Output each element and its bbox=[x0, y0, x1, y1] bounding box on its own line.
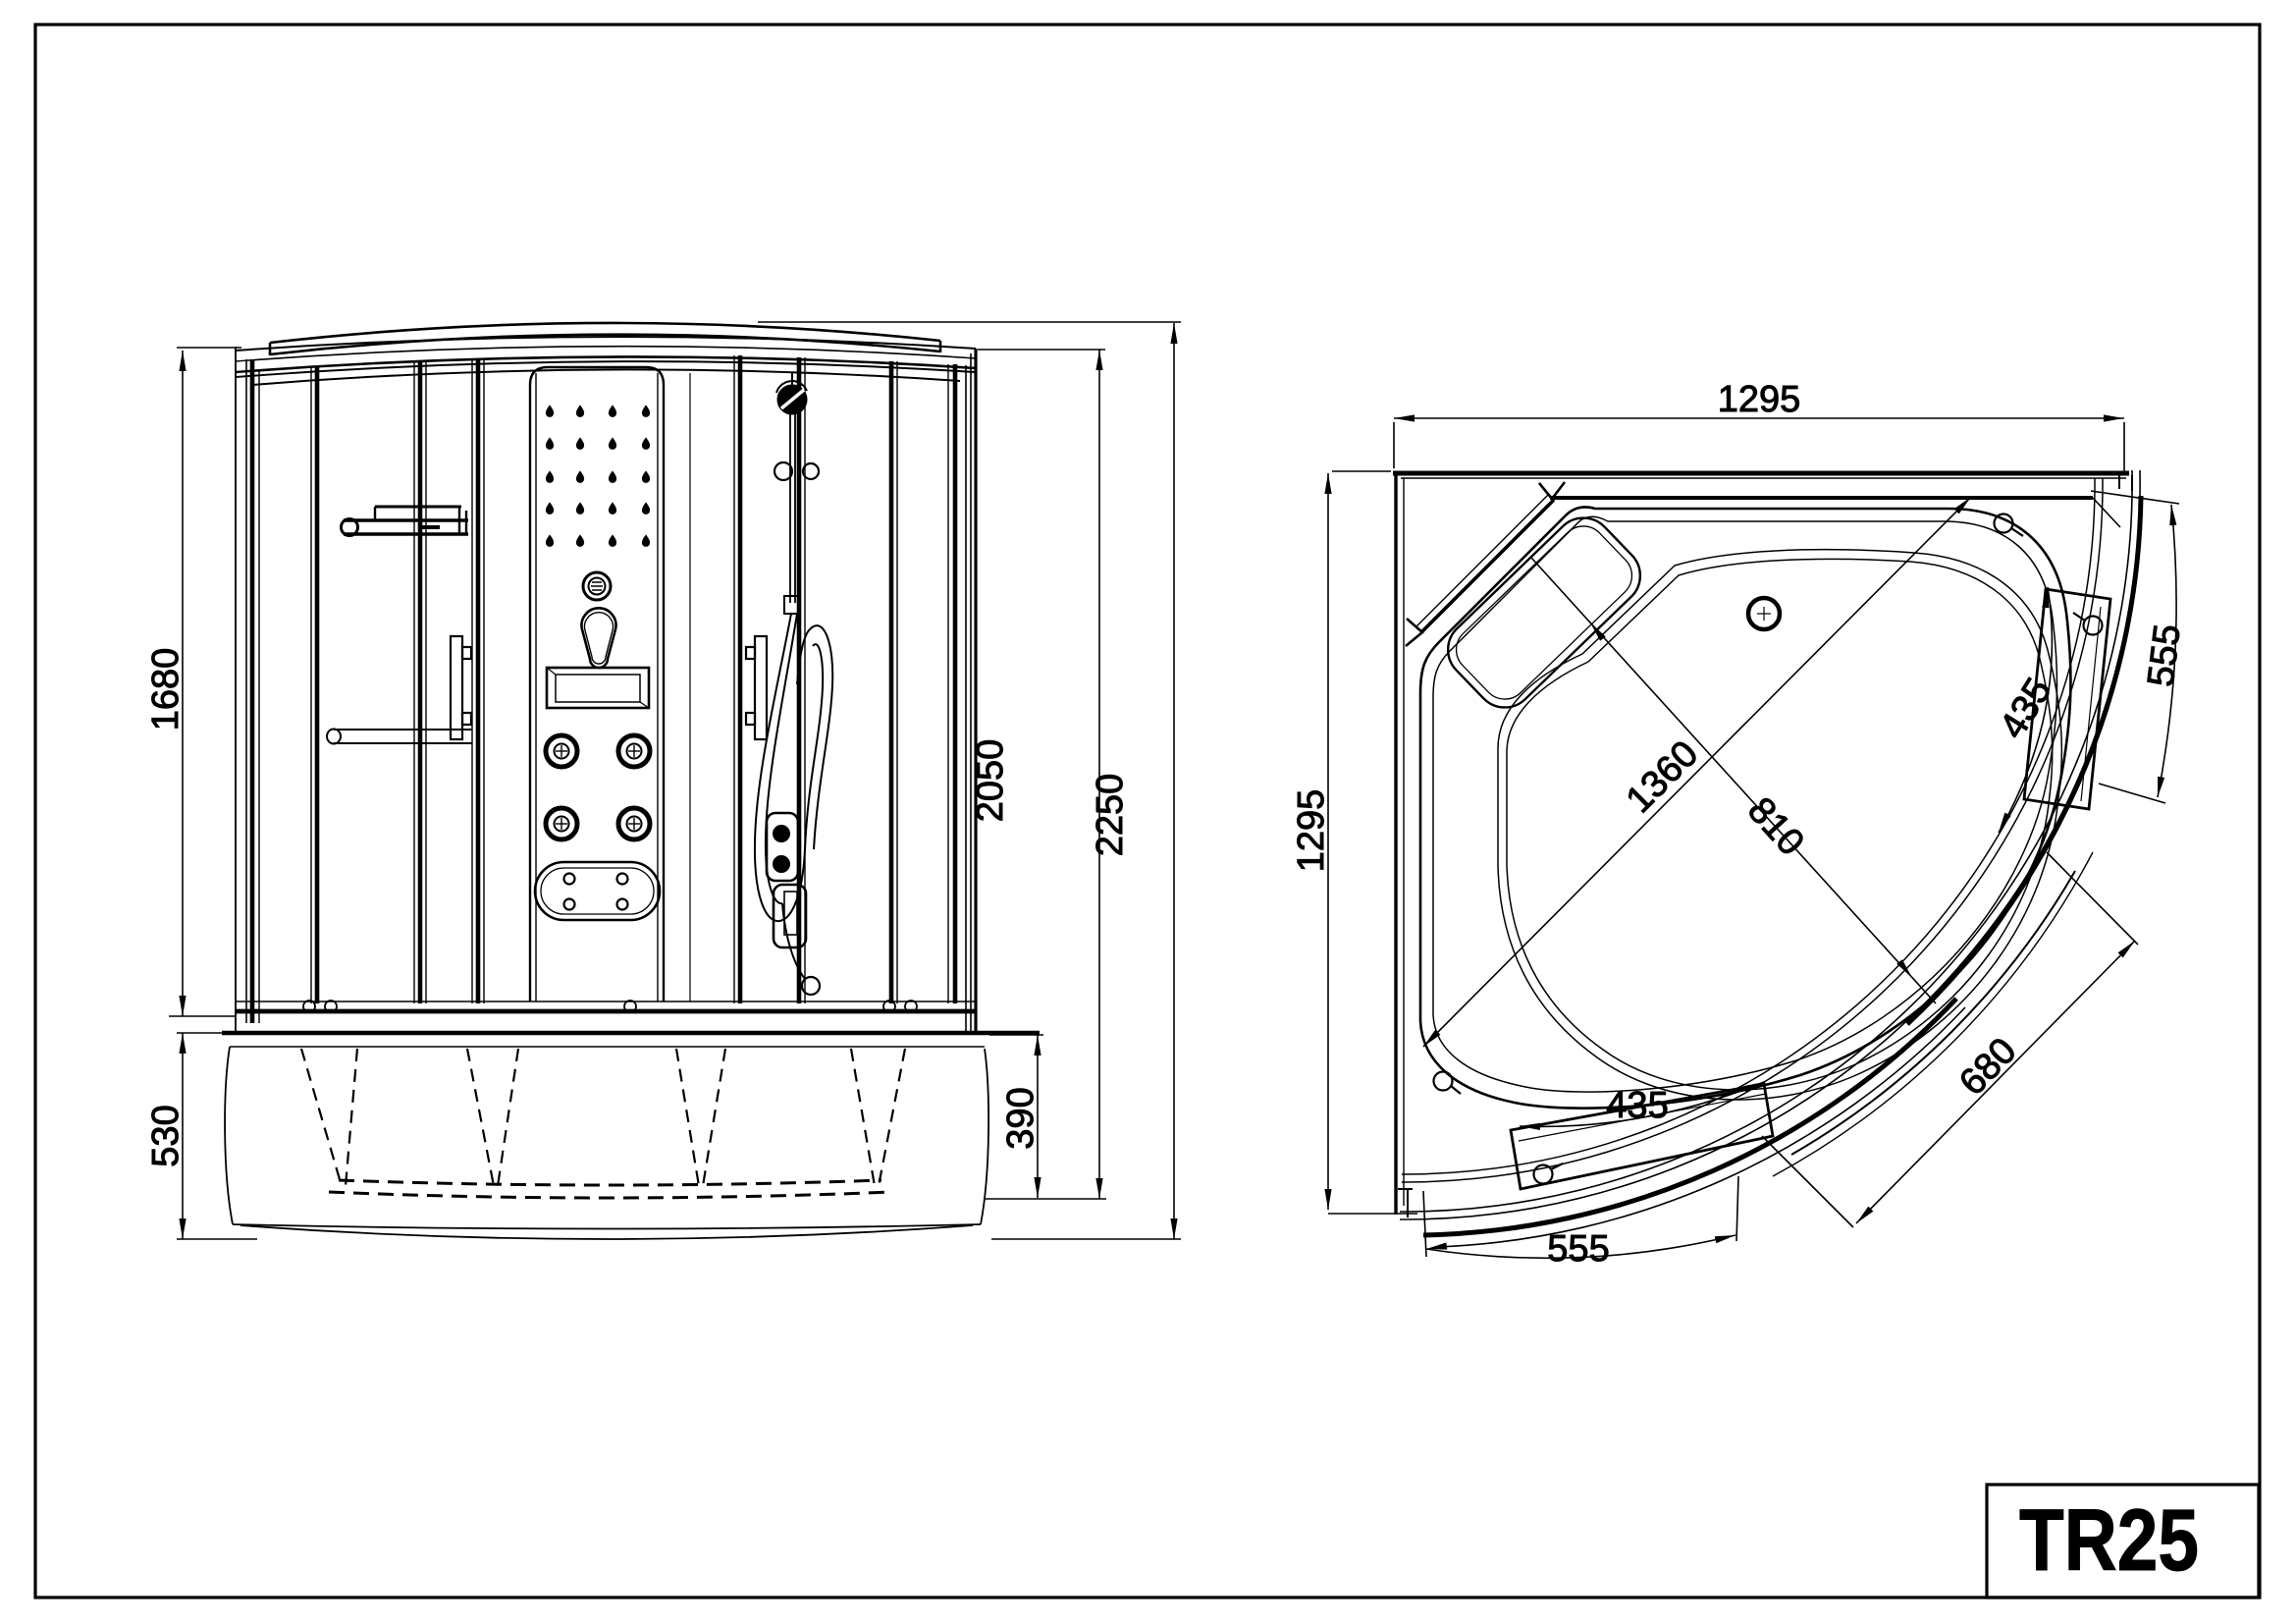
svg-text:1680: 1680 bbox=[145, 648, 187, 731]
svg-text:390: 390 bbox=[1000, 1087, 1041, 1149]
svg-text:435: 435 bbox=[1606, 1085, 1668, 1126]
svg-text:530: 530 bbox=[145, 1105, 187, 1166]
svg-text:TR25: TR25 bbox=[2019, 1490, 2199, 1589]
svg-text:2250: 2250 bbox=[1090, 774, 1131, 857]
svg-text:1295: 1295 bbox=[1718, 379, 1801, 420]
svg-text:2050: 2050 bbox=[970, 739, 1011, 823]
svg-text:555: 555 bbox=[2140, 623, 2188, 689]
svg-text:1295: 1295 bbox=[1291, 789, 1332, 873]
svg-text:555: 555 bbox=[1547, 1228, 1609, 1270]
